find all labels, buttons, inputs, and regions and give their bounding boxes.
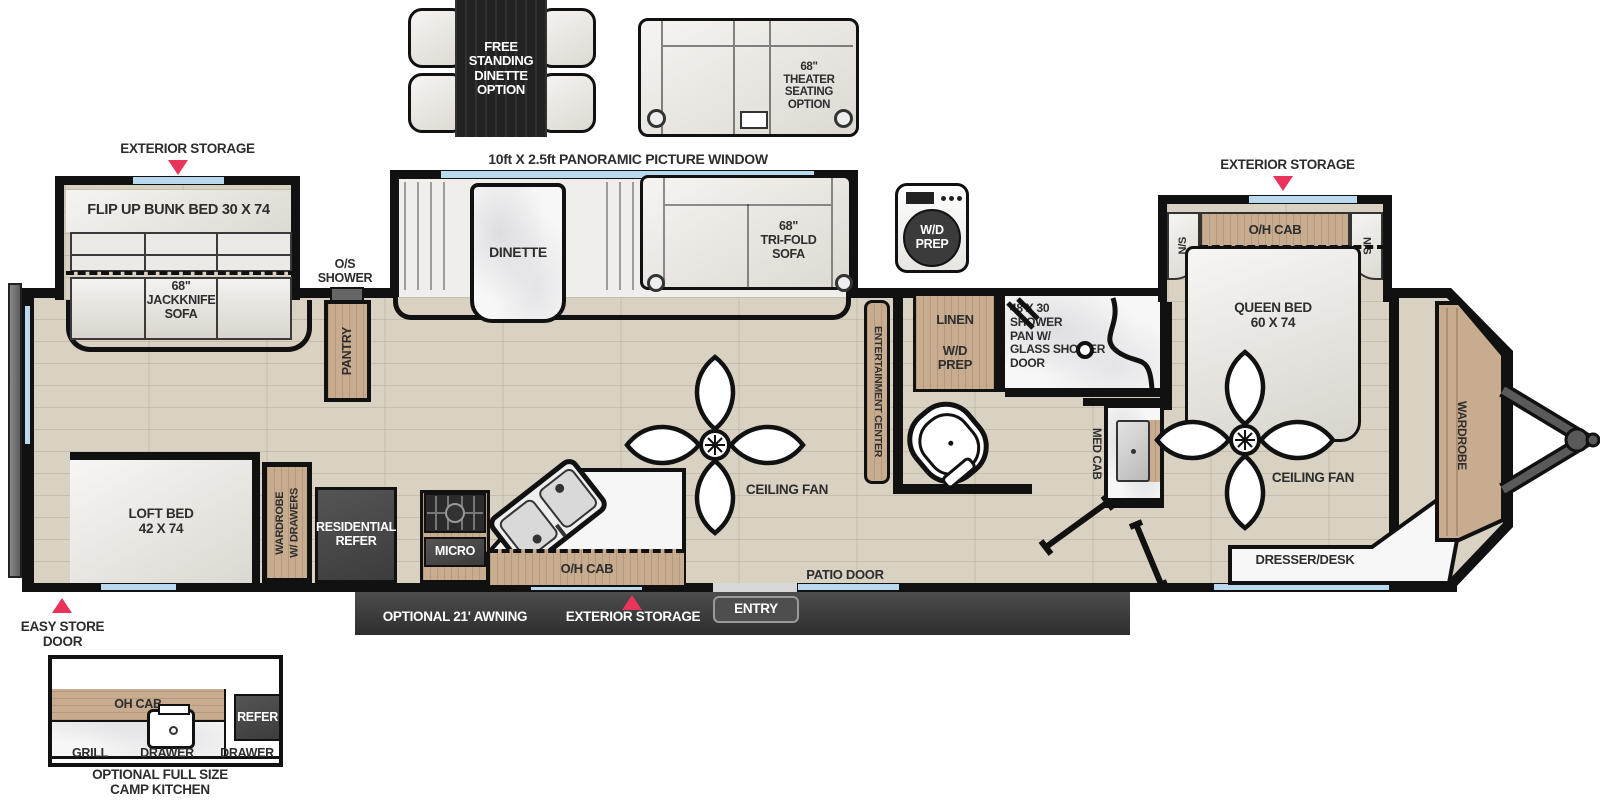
microwave: MICRO <box>424 537 486 567</box>
nose-body <box>1394 293 1508 587</box>
exterior-storage-bottom-label: EXTERIOR STORAGE <box>558 610 708 625</box>
jackknife-sofa-label: 68" JACKKNIFE SOFA <box>131 280 231 321</box>
panoramic-window-callout: 10ft X 2.5ft PANORAMIC PICTURE WINDOW <box>438 152 818 167</box>
free-standing-dinette-option: FREE STANDING DINETTE OPTION <box>455 0 547 137</box>
theater-back-seam <box>771 45 853 47</box>
floorplan-diagram: FREE STANDING DINETTE OPTION 68" THEATER… <box>0 0 1600 808</box>
theater-seating-label: 68" THEATER SEATING OPTION <box>769 61 849 112</box>
exterior-storage-bottom-arrow-icon <box>622 595 642 610</box>
free-standing-dinette-label: FREE STANDING DINETTE OPTION <box>469 40 534 97</box>
queen-bed-label: QUEEN BED 60 X 74 <box>1206 301 1340 331</box>
bunk-flip-dashed-line <box>66 271 296 275</box>
bedroom-window <box>1213 583 1437 591</box>
theater-cupholder <box>647 109 666 128</box>
camp-sink-drain <box>169 726 178 735</box>
easy-store-door-arrow-icon <box>52 598 72 613</box>
jackknife-sofa-back <box>70 232 292 272</box>
sofa-arm-seam <box>663 178 665 287</box>
washer-dryer-prep-icon: W/D PREP <box>895 183 969 273</box>
sofa-cupholder <box>835 274 853 292</box>
bath-left-wall <box>893 298 903 494</box>
flip-up-bunk-label: FLIP UP BUNK BED 30 X 74 <box>87 203 269 219</box>
nose-wardrobe-label: WARDROBE <box>1452 360 1468 510</box>
rear-side-window <box>24 305 31 445</box>
linen-label: LINEN <box>936 313 974 327</box>
dresser-desk-label: DRESSER/DESK <box>1240 553 1370 567</box>
camp-oh-cab: OH CAB <box>52 689 224 722</box>
cooktop <box>424 493 486 533</box>
os-shower-label: O/S SHOWER <box>300 258 390 286</box>
exterior-storage-front-label: EXTERIOR STORAGE <box>1210 158 1365 173</box>
ceiling-fan-bedroom-label: CEILING FAN <box>1238 471 1388 486</box>
loft-window <box>100 583 177 591</box>
tri-fold-sofa-label: 68" TRI-FOLD SOFA <box>741 220 836 261</box>
rear-bumper <box>8 283 22 578</box>
sofa-back-seam <box>72 254 290 256</box>
washer-knob <box>941 196 946 201</box>
kitchen-oh-cab-label: O/H CAB <box>561 562 614 576</box>
camp-sink <box>147 709 195 749</box>
wardrobe-with-drawers: WARDROBE W/ DRAWERS <box>262 462 312 583</box>
patio-door-label: PATIO DOOR <box>790 568 900 582</box>
washer-control-panel <box>906 192 934 204</box>
ceiling-fan-living-label: CEILING FAN <box>712 483 862 498</box>
kitchen-oh-cab: O/H CAB <box>490 549 684 585</box>
bath-bottom-wall <box>893 484 1032 494</box>
wd-prep-label: W/D PREP <box>938 344 972 373</box>
camp-kitchen-caption: OPTIONAL FULL SIZE CAMP KITCHEN <box>75 768 245 798</box>
exterior-storage-rear-arrow-icon <box>168 160 188 175</box>
theater-cup-tray <box>740 111 768 129</box>
wardrobe-drawers-label: WARDROBE W/ DRAWERS <box>273 488 302 558</box>
bedroom-slide-window <box>1248 195 1358 204</box>
camp-drawer2-label: DRAWER <box>212 747 282 761</box>
patio-door-glass <box>797 583 900 591</box>
faucet-dot <box>1131 449 1136 454</box>
camp-drawer1-label: DRAWER <box>132 747 202 761</box>
camp-sink-controls <box>158 704 190 715</box>
washer-knob <box>949 196 954 201</box>
shower-label: 48 X 30 SHOWER PAN W/ GLASS SHOWER DOOR <box>1010 302 1118 371</box>
theater-console-seam <box>735 45 769 47</box>
camp-grill-label: GRILL <box>60 747 120 761</box>
nose-wardrobe <box>1437 303 1503 540</box>
bedroom-oh-cab: O/H CAB <box>1200 212 1350 248</box>
easy-store-door-label: EASY STORE DOOR <box>0 620 125 650</box>
camp-refer: REFER <box>234 694 281 741</box>
awning-label: OPTIONAL 21' AWNING <box>365 610 545 625</box>
bunk-slide-window <box>132 176 225 185</box>
theater-cupholder <box>834 109 853 128</box>
dinette-label: DINETTE <box>489 245 547 260</box>
sofa-back-seam <box>216 234 218 270</box>
camp-refer-label: REFER <box>237 711 278 725</box>
entertainment-center: ENTERTAINMENT CENTER <box>864 300 890 484</box>
tri-fold-sofa: 68" TRI-FOLD SOFA <box>640 175 852 290</box>
queen-bed: QUEEN BED 60 X 74 <box>1185 246 1361 442</box>
dinette-bench <box>606 182 638 290</box>
dinette-table: DINETTE <box>470 183 566 323</box>
medcab-bottom-wall <box>1104 500 1164 508</box>
med-cab <box>1104 404 1164 502</box>
sofa-cupholder <box>647 274 665 292</box>
loft-bed-label: LOFT BED 42 X 74 <box>128 507 193 537</box>
entry-door: ENTRY <box>713 596 799 623</box>
entry-door-opening <box>713 583 797 592</box>
pantry-label: PANTRY <box>341 327 355 375</box>
bedroom-oh-cab-label: O/H CAB <box>1249 223 1302 237</box>
flip-up-bunk-bed: FLIP UP BUNK BED 30 X 74 <box>66 190 291 232</box>
entertainment-center-label: ENTERTAINMENT CENTER <box>871 326 883 457</box>
residential-refrigerator: RESIDENTIAL REFER <box>315 487 397 583</box>
bedroom-left-wall <box>1160 288 1172 410</box>
pantry: PANTRY <box>324 300 371 402</box>
camp-kitchen: OH CAB REFER GRILL DRAWER DRAWER <box>48 655 283 767</box>
linen-wd-prep-cabinet: LINEN W/D PREP <box>913 293 997 392</box>
dinette-bench <box>404 182 448 290</box>
washer-knob <box>957 196 962 201</box>
dinette-footprint-line <box>393 290 851 320</box>
theater-back-seam <box>663 45 733 47</box>
top-wall-seg <box>1385 288 1450 298</box>
washer-drum: W/D PREP <box>903 209 961 267</box>
hitch-tongue <box>1503 390 1599 490</box>
exterior-storage-rear-label: EXTERIOR STORAGE <box>110 142 265 157</box>
theater-seating-option: 68" THEATER SEATING OPTION <box>638 18 859 137</box>
wd-prep-icon-label: W/D PREP <box>916 224 949 252</box>
exterior-storage-front-arrow-icon <box>1273 176 1293 191</box>
bath-sink <box>1116 420 1150 482</box>
med-cab-label: MED CAB <box>1086 410 1102 498</box>
micro-label: MICRO <box>435 545 475 559</box>
entry-label: ENTRY <box>734 602 778 617</box>
loft-bed: LOFT BED 42 X 74 <box>70 452 260 583</box>
sofa-back-seam <box>144 234 146 270</box>
shower-bottom-wall <box>1005 388 1160 397</box>
residential-refer-label: RESIDENTIAL REFER <box>316 521 396 549</box>
